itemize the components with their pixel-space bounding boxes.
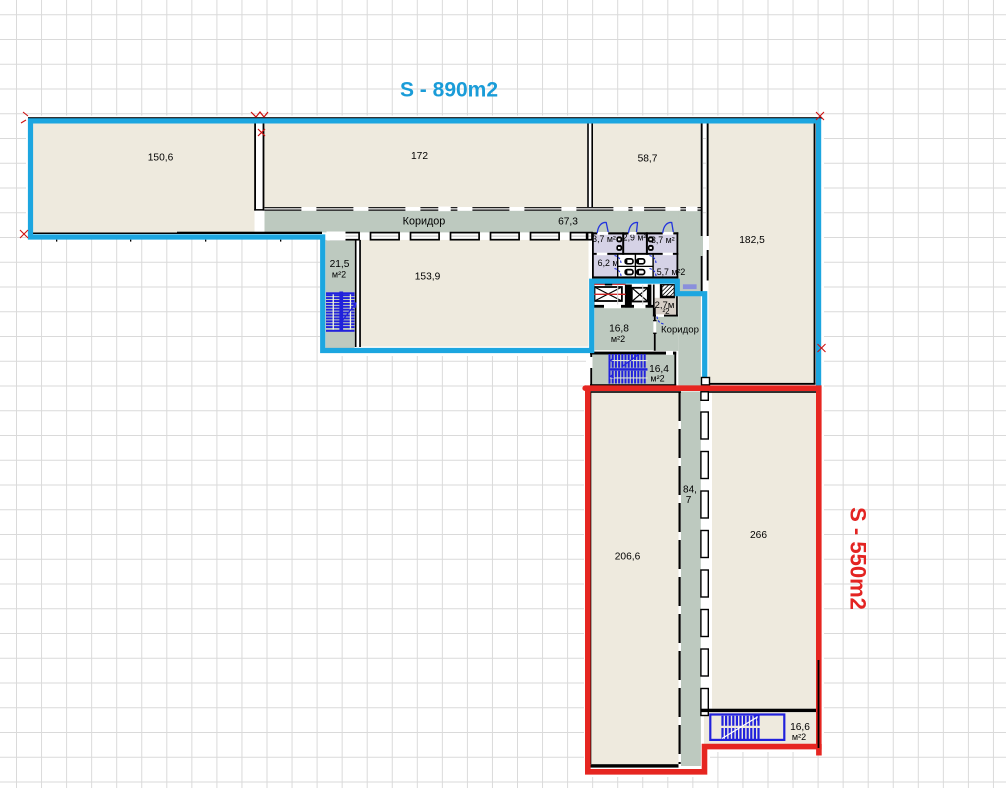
svg-text:206,6: 206,6 [615,552,641,563]
svg-text:172: 172 [411,151,428,162]
svg-text:153,9: 153,9 [415,272,441,283]
svg-text:м²2: м²2 [611,334,625,344]
svg-text:150,6: 150,6 [148,153,174,164]
svg-text:м²2: м²2 [332,269,346,279]
svg-text:Коридор: Коридор [661,325,699,336]
svg-text:5,7 м²2: 5,7 м²2 [657,267,686,277]
svg-text:67,3: 67,3 [558,217,578,228]
svg-text:м²2: м²2 [792,732,806,742]
svg-text:3,7 м²: 3,7 м² [651,235,675,245]
svg-text:182,5: 182,5 [739,235,765,246]
svg-text:266: 266 [750,530,767,541]
svg-text:S - 550m2: S - 550m2 [846,507,871,610]
svg-text:7: 7 [686,495,692,506]
svg-text:м²2: м²2 [650,374,664,384]
svg-text:3,7 м²: 3,7 м² [592,234,616,244]
svg-text:S - 890m2: S - 890m2 [400,79,498,102]
svg-text:84,: 84, [683,485,697,496]
svg-text:Коридор: Коридор [403,216,446,228]
svg-text:58,7: 58,7 [638,154,658,165]
